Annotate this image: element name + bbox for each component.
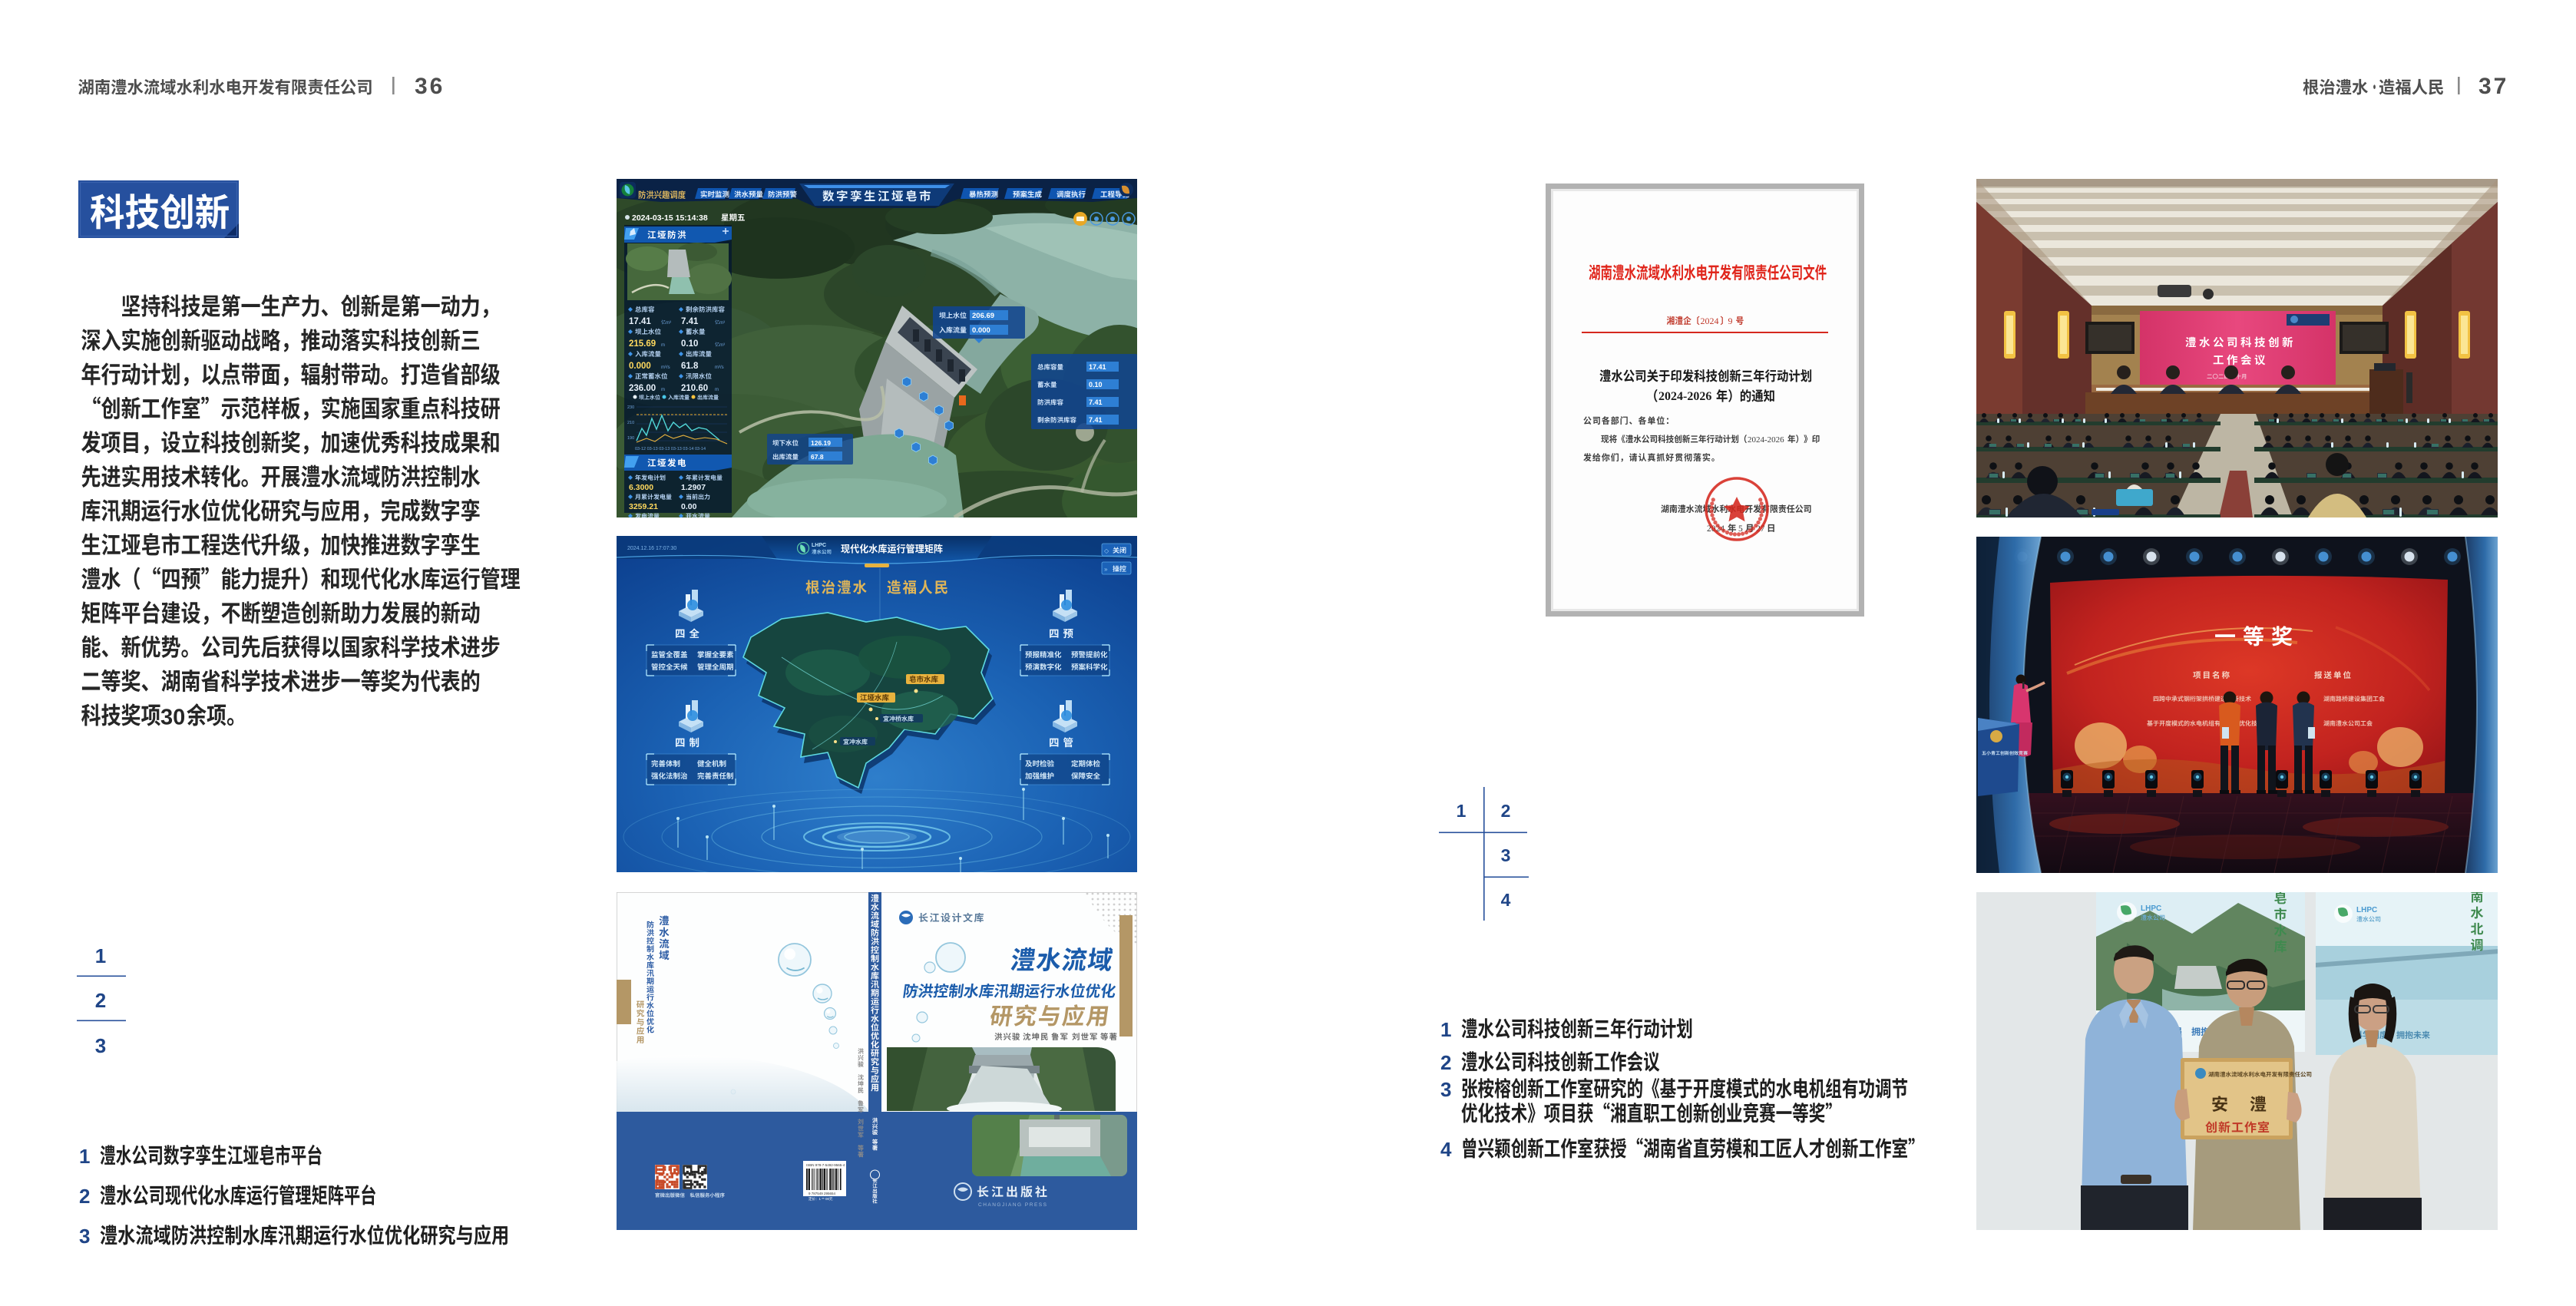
svg-text:7.41: 7.41: [1089, 398, 1103, 406]
svg-text:0.00: 0.00: [681, 502, 697, 511]
svg-text:9 787549 295654: 9 787549 295654: [809, 1192, 836, 1195]
svg-text:126.19: 126.19: [811, 439, 831, 447]
svg-text:2: 2: [95, 989, 106, 1012]
svg-text:定价：1 ** 00元: 定价：1 ** 00元: [809, 1196, 833, 1202]
svg-text:2024-2026: 2024-2026: [1658, 390, 1711, 403]
svg-text:210.60: 210.60: [681, 384, 708, 393]
svg-text:2024: 2024: [1701, 316, 1719, 326]
svg-text:6.3000: 6.3000: [629, 483, 653, 492]
svg-text:1: 1: [79, 1145, 90, 1168]
svg-text:亿m³: 亿m³: [661, 319, 671, 326]
svg-text:亿m³: 亿m³: [715, 319, 725, 326]
svg-text:2: 2: [1440, 1051, 1451, 1074]
svg-text:m: m: [661, 388, 665, 392]
svg-text:0.000: 0.000: [972, 326, 990, 335]
svg-text:2024-03-15 15:14:38: 2024-03-15 15:14:38: [632, 213, 708, 223]
svg-text:3: 3: [95, 1034, 106, 1057]
svg-text:m: m: [661, 343, 665, 348]
svg-text:0.000: 0.000: [629, 362, 651, 371]
svg-text:3: 3: [79, 1225, 90, 1248]
svg-text:1: 1: [1457, 801, 1467, 821]
svg-text:3: 3: [1501, 845, 1511, 865]
svg-text:m³/s: m³/s: [715, 365, 724, 370]
svg-text:LHPC: LHPC: [2141, 904, 2161, 913]
svg-text:◇: ◇: [1104, 547, 1109, 554]
svg-text:1.2907: 1.2907: [681, 483, 706, 492]
svg-text:LHPC: LHPC: [2356, 906, 2377, 914]
svg-text:LHPC: LHPC: [812, 543, 826, 548]
svg-text:ISBN 978-7-5492-9565-4: ISBN 978-7-5492-9565-4: [806, 1163, 845, 1167]
svg-text:215.69: 215.69: [629, 339, 656, 349]
svg-text:4: 4: [1501, 890, 1511, 910]
svg-text:17.41: 17.41: [629, 317, 651, 326]
svg-text:7.41: 7.41: [681, 317, 699, 326]
svg-text:»: »: [1104, 566, 1108, 573]
svg-text:36: 36: [415, 74, 445, 99]
svg-text:m³/s: m³/s: [661, 365, 670, 370]
svg-text:2: 2: [79, 1185, 90, 1208]
svg-text:210: 210: [627, 421, 634, 425]
svg-text:0.10: 0.10: [681, 339, 698, 349]
svg-text:m: m: [715, 388, 719, 392]
svg-text:4: 4: [1440, 1138, 1452, 1161]
svg-text:1: 1: [1440, 1018, 1451, 1041]
svg-text:190: 190: [627, 436, 634, 441]
svg-text:亿m³: 亿m³: [715, 342, 725, 348]
svg-text:3259.21: 3259.21: [629, 502, 658, 511]
svg-text:03-12 03-13 03-13 03-13 03: 03-12 03-13 03-13 03-13 03-14 03-14: [635, 447, 706, 451]
svg-text:17.41: 17.41: [1089, 363, 1106, 371]
svg-text:206.69: 206.69: [972, 312, 994, 320]
svg-text:CHANGJIANG PRESS: CHANGJIANG PRESS: [978, 1202, 1047, 1208]
svg-text:236.00: 236.00: [629, 384, 656, 393]
svg-text:1: 1: [95, 944, 106, 967]
svg-text:230: 230: [627, 405, 634, 410]
svg-text:0.10: 0.10: [1089, 381, 1103, 388]
svg-text:3: 3: [1440, 1078, 1451, 1101]
svg-text:30: 30: [160, 705, 185, 729]
svg-text:67.8: 67.8: [811, 453, 824, 461]
svg-text:9: 9: [1728, 316, 1733, 326]
svg-text:61.8: 61.8: [681, 362, 699, 371]
svg-text:2: 2: [1501, 801, 1511, 821]
svg-text:7.41: 7.41: [1089, 416, 1103, 424]
svg-text:2024.12.16 17:07:30: 2024.12.16 17:07:30: [627, 546, 676, 551]
svg-text:37: 37: [2478, 74, 2508, 99]
svg-text:2024-2026: 2024-2026: [1748, 435, 1784, 445]
